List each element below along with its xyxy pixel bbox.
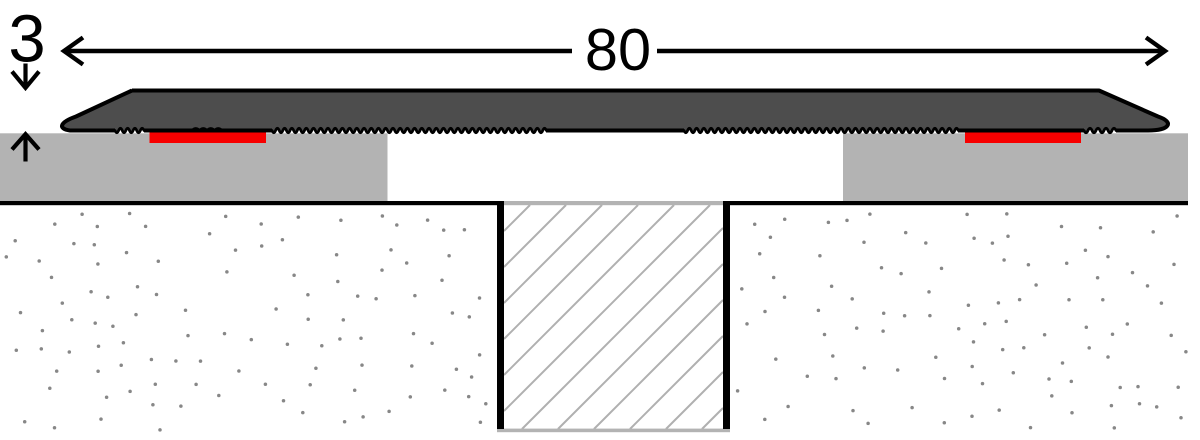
svg-text:80: 80 (585, 16, 651, 83)
